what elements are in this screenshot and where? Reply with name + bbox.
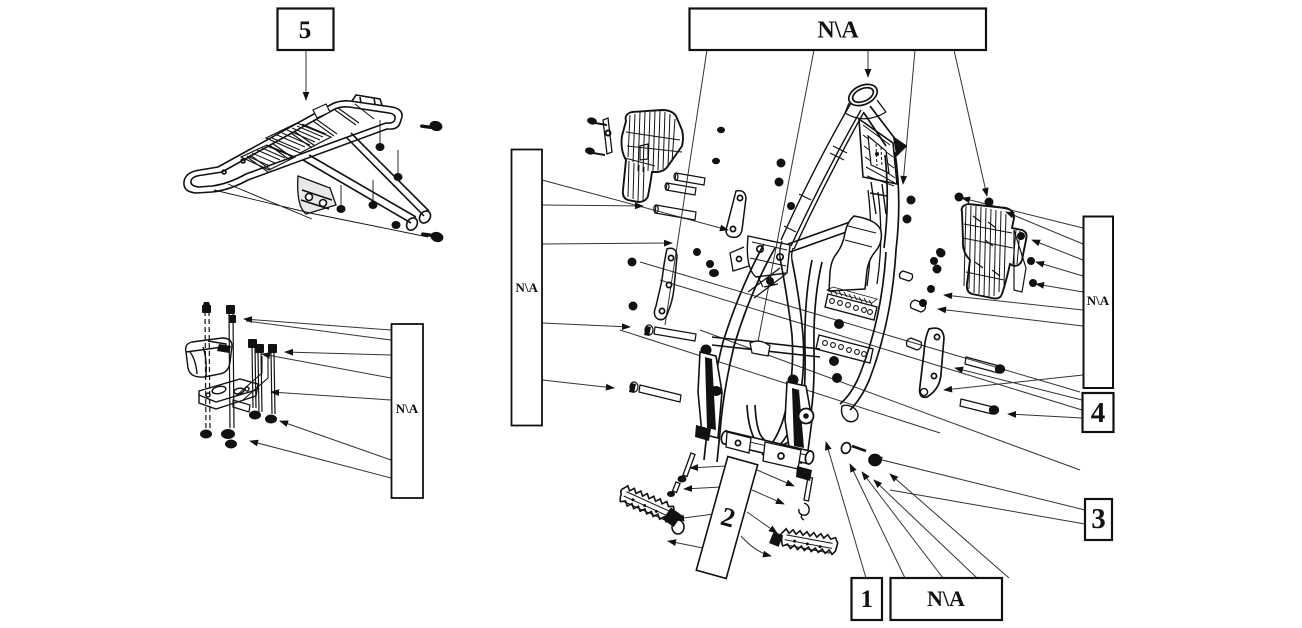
svg-text:N\A: N\A [396, 401, 419, 416]
svg-text:3: 3 [1091, 503, 1106, 535]
svg-text:1: 1 [860, 586, 873, 613]
svg-text:4: 4 [1091, 397, 1106, 429]
svg-text:N\A: N\A [817, 18, 859, 44]
svg-text:N\A: N\A [1087, 293, 1110, 308]
svg-text:N\A: N\A [516, 280, 539, 295]
svg-text:N\A: N\A [927, 586, 965, 611]
svg-text:5: 5 [299, 17, 312, 44]
